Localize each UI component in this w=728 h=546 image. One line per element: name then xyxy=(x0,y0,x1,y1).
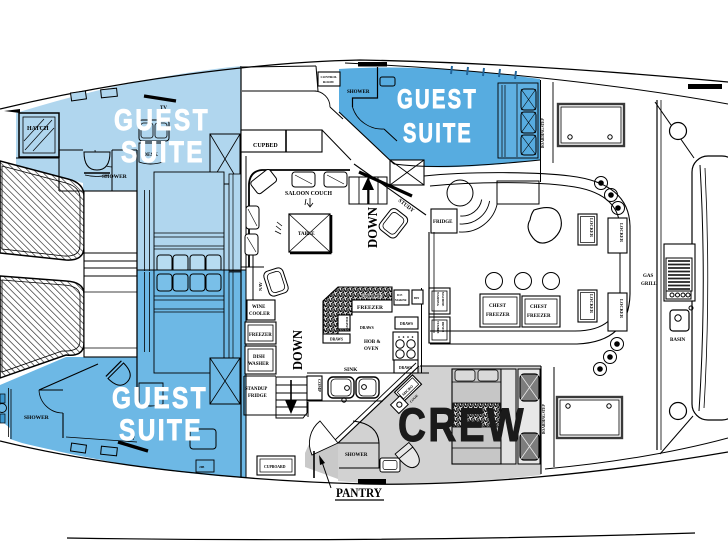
svg-text:SHOWER: SHOWER xyxy=(345,453,368,458)
svg-text:DRAWS: DRAWS xyxy=(345,317,349,329)
svg-text:MAKER: MAKER xyxy=(395,298,407,302)
svg-text:SALOON COUCH: SALOON COUCH xyxy=(285,190,332,197)
svg-text:LOCKER: LOCKER xyxy=(589,294,594,314)
svg-text:GAS: GAS xyxy=(643,274,654,279)
svg-text:FRIDGE: FRIDGE xyxy=(433,220,453,225)
svg-text:SUITE: SUITE xyxy=(119,414,203,447)
svg-text:JIB: JIB xyxy=(199,465,205,469)
svg-text:FREEZER: FREEZER xyxy=(357,305,384,311)
svg-text:FRIDGE: FRIDGE xyxy=(361,294,383,300)
svg-text:FRIDGE: FRIDGE xyxy=(248,394,267,399)
svg-text:DISH: DISH xyxy=(253,355,265,360)
svg-text:DOWN: DOWN xyxy=(365,207,380,248)
svg-text:FREEZER: FREEZER xyxy=(527,314,551,319)
svg-text:GUEST: GUEST xyxy=(114,104,210,137)
svg-text:CONTROL: CONTROL xyxy=(321,75,338,79)
svg-text:WINE: WINE xyxy=(252,305,265,310)
svg-text:DRAWS: DRAWS xyxy=(360,326,374,330)
svg-text:SHOWER: SHOWER xyxy=(24,415,50,421)
svg-text:BASIN: BASIN xyxy=(670,338,686,343)
svg-text:ICE: ICE xyxy=(397,293,402,297)
svg-text:STANDUP: STANDUP xyxy=(245,387,267,392)
svg-text:HATCH: HATCH xyxy=(27,126,49,132)
svg-text:LOCKER: LOCKER xyxy=(619,223,624,243)
svg-text:LOCKER: LOCKER xyxy=(589,218,594,238)
svg-text:NAV: NAV xyxy=(258,281,263,291)
svg-text:GRILL: GRILL xyxy=(641,282,658,287)
svg-text:WASHING: WASHING xyxy=(436,292,440,307)
svg-text:HOB &: HOB & xyxy=(364,340,381,345)
svg-text:MACHINE: MACHINE xyxy=(441,292,445,306)
svg-text:SUITE: SUITE xyxy=(403,118,473,148)
svg-text:ROOM: ROOM xyxy=(323,80,335,84)
svg-text:OVEN: OVEN xyxy=(364,347,379,352)
svg-text:CHEST: CHEST xyxy=(530,305,548,310)
svg-text:SHOWER: SHOWER xyxy=(102,174,128,180)
svg-text:PANTRY: PANTRY xyxy=(336,486,382,500)
svg-text:SINK: SINK xyxy=(344,367,358,373)
svg-text:DOWN: DOWN xyxy=(290,330,305,370)
svg-text:COMP: COMP xyxy=(317,379,322,392)
svg-text:TUMBLE: TUMBLE xyxy=(436,321,440,334)
svg-text:CHEST: CHEST xyxy=(489,304,507,309)
svg-text:DRAWS: DRAWS xyxy=(330,338,343,342)
svg-text:GUEST: GUEST xyxy=(397,84,478,114)
svg-text:SUITE: SUITE xyxy=(121,136,205,169)
svg-text:LOCKER: LOCKER xyxy=(619,299,624,319)
svg-text:WASHER: WASHER xyxy=(248,362,269,367)
svg-text:BIN: BIN xyxy=(414,296,420,300)
svg-text:CREW: CREW xyxy=(398,398,526,451)
svg-text:TABLE: TABLE xyxy=(298,232,315,237)
svg-text:SHOWER: SHOWER xyxy=(347,90,370,95)
svg-text:DRAWS: DRAWS xyxy=(400,322,413,326)
svg-text:COOLER: COOLER xyxy=(249,312,270,317)
svg-text:BOARDING STEP: BOARDING STEP xyxy=(542,404,546,434)
svg-text:CUPBED: CUPBED xyxy=(253,143,278,149)
svg-text:FREEZER: FREEZER xyxy=(486,313,510,318)
svg-text:FREEZER: FREEZER xyxy=(249,333,272,338)
svg-text:GUEST: GUEST xyxy=(112,382,208,415)
svg-text:CUPBOARD: CUPBOARD xyxy=(264,465,286,469)
svg-text:BOARDING STEP: BOARDING STEP xyxy=(541,118,545,148)
svg-text:DRAWS: DRAWS xyxy=(399,366,412,370)
